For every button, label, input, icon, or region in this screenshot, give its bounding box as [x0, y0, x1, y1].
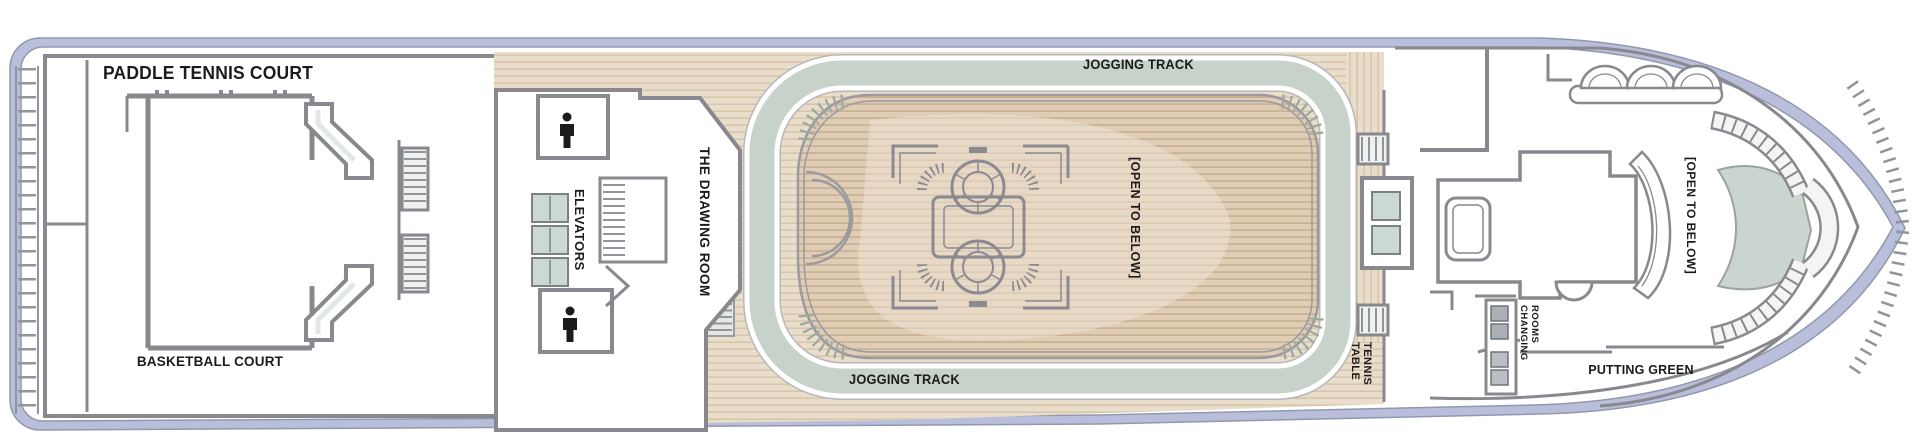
elevators-label: ELEVATORS [572, 189, 587, 293]
open-to-below-bow-label: [OPEN TO BELOW] [1684, 157, 1698, 289]
putting-green-label: PUTTING GREEN [1588, 363, 1694, 377]
aft-court-top-label: PADDLE TENNIS COURT [103, 63, 312, 84]
stairwell [600, 178, 666, 262]
table-tennis-line1: TABLE [1349, 342, 1361, 380]
entry-baffle-bottom [306, 266, 372, 340]
changing-rooms-label: CHANGING ROOMS [1518, 305, 1540, 389]
jogging-track-bottom-label: JOGGING TRACK [849, 372, 960, 387]
bow-pavilion [1438, 152, 1670, 300]
bow-fan-feature [1712, 120, 1829, 336]
elevator-bank [532, 194, 568, 286]
changing-line1: CHANGING [1518, 305, 1529, 361]
aft-court-bottom-label: BASKETBALL COURT [110, 354, 310, 369]
changing-line2: ROOMS [1529, 305, 1540, 343]
lockers [1486, 300, 1516, 394]
table-tennis-label: TABLE TENNIS [1349, 342, 1373, 400]
drawing-room-label: THE DRAWING ROOM [697, 147, 712, 297]
entry-baffle-top [306, 104, 372, 178]
deck-plan: PADDLE TENNIS COURT BASKETBALL COURT ELE… [0, 0, 1920, 448]
jogging-track-top-label: JOGGING TRACK [1083, 57, 1194, 72]
open-to-below-atrium-label: [OPEN TO BELOW] [1128, 157, 1142, 289]
aft-sports-court [127, 90, 372, 348]
cabana-canopy [1570, 66, 1722, 103]
midaft-stairs [399, 140, 428, 300]
table-tennis-line2: TENNIS [1361, 342, 1373, 385]
